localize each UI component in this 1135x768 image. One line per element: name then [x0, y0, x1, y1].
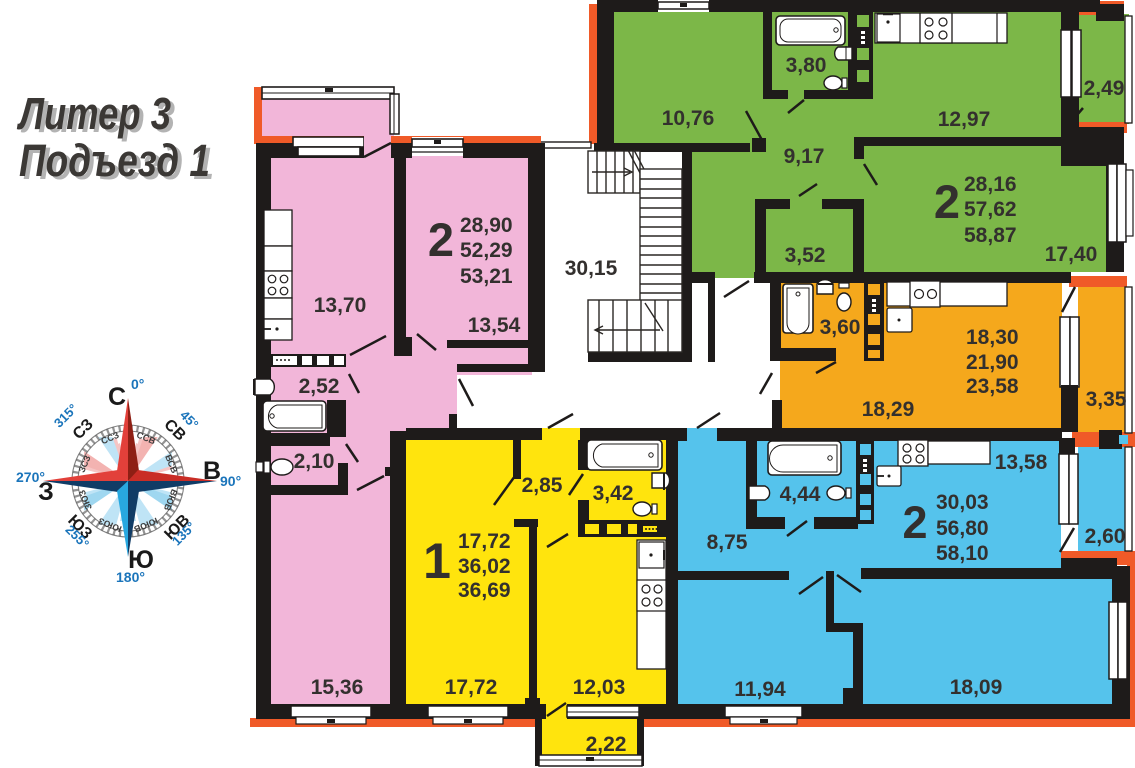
svg-text:9,17: 9,17 — [784, 145, 825, 168]
svg-text:58,87: 58,87 — [964, 224, 1017, 247]
svg-text:2,85: 2,85 — [522, 474, 563, 497]
svg-text:8,75: 8,75 — [707, 531, 748, 554]
svg-text:10,76: 10,76 — [662, 107, 715, 130]
svg-text:2: 2 — [428, 213, 454, 266]
svg-text:1: 1 — [423, 533, 451, 589]
svg-text:2,60: 2,60 — [1085, 525, 1126, 548]
svg-text:53,21: 53,21 — [460, 265, 513, 288]
svg-text:3,52: 3,52 — [785, 244, 826, 267]
svg-text:18,29: 18,29 — [862, 398, 915, 421]
svg-text:17,72: 17,72 — [445, 676, 498, 699]
svg-text:58,10: 58,10 — [936, 542, 989, 565]
svg-text:36,02: 36,02 — [458, 555, 511, 578]
svg-text:57,62: 57,62 — [964, 198, 1017, 221]
svg-text:13,54: 13,54 — [468, 314, 521, 337]
svg-text:2,10: 2,10 — [294, 450, 335, 473]
svg-text:13,58: 13,58 — [995, 451, 1048, 474]
svg-text:0°: 0° — [131, 376, 144, 392]
svg-text:270°: 270° — [16, 469, 45, 485]
svg-text:30,03: 30,03 — [936, 491, 989, 514]
svg-text:4,44: 4,44 — [780, 483, 821, 506]
svg-text:90°: 90° — [220, 473, 241, 489]
svg-text:3,35: 3,35 — [1086, 388, 1127, 411]
svg-text:28,16: 28,16 — [964, 173, 1017, 196]
svg-text:23,58: 23,58 — [966, 375, 1019, 398]
svg-text:12,03: 12,03 — [573, 676, 626, 699]
svg-text:17,72: 17,72 — [458, 530, 511, 553]
svg-text:11,94: 11,94 — [734, 678, 786, 701]
svg-text:21,90: 21,90 — [966, 351, 1019, 374]
svg-text:36,69: 36,69 — [458, 579, 511, 602]
svg-text:Подъезд 1: Подъезд 1 — [19, 135, 210, 186]
svg-text:С: С — [108, 383, 126, 411]
svg-text:180°: 180° — [116, 569, 145, 585]
svg-text:2: 2 — [902, 497, 927, 548]
svg-text:3,42: 3,42 — [593, 482, 634, 505]
svg-text:13,70: 13,70 — [314, 294, 367, 317]
svg-text:12,97: 12,97 — [938, 108, 991, 131]
svg-text:Литер 3: Литер 3 — [17, 88, 171, 139]
svg-text:17,40: 17,40 — [1045, 243, 1098, 266]
svg-text:В: В — [203, 457, 221, 485]
svg-text:3,80: 3,80 — [786, 54, 827, 77]
svg-text:15,36: 15,36 — [311, 676, 364, 699]
svg-text:52,29: 52,29 — [460, 239, 513, 262]
svg-text:56,80: 56,80 — [936, 517, 989, 540]
svg-text:2,52: 2,52 — [299, 375, 340, 398]
svg-text:2,49: 2,49 — [1084, 77, 1125, 100]
svg-text:18,09: 18,09 — [950, 676, 1003, 699]
svg-text:3,60: 3,60 — [820, 316, 861, 339]
svg-text:2: 2 — [934, 175, 960, 228]
svg-text:2,22: 2,22 — [586, 733, 627, 756]
svg-text:28,90: 28,90 — [460, 214, 513, 237]
svg-text:30,15: 30,15 — [565, 257, 618, 280]
svg-text:18,30: 18,30 — [966, 326, 1019, 349]
